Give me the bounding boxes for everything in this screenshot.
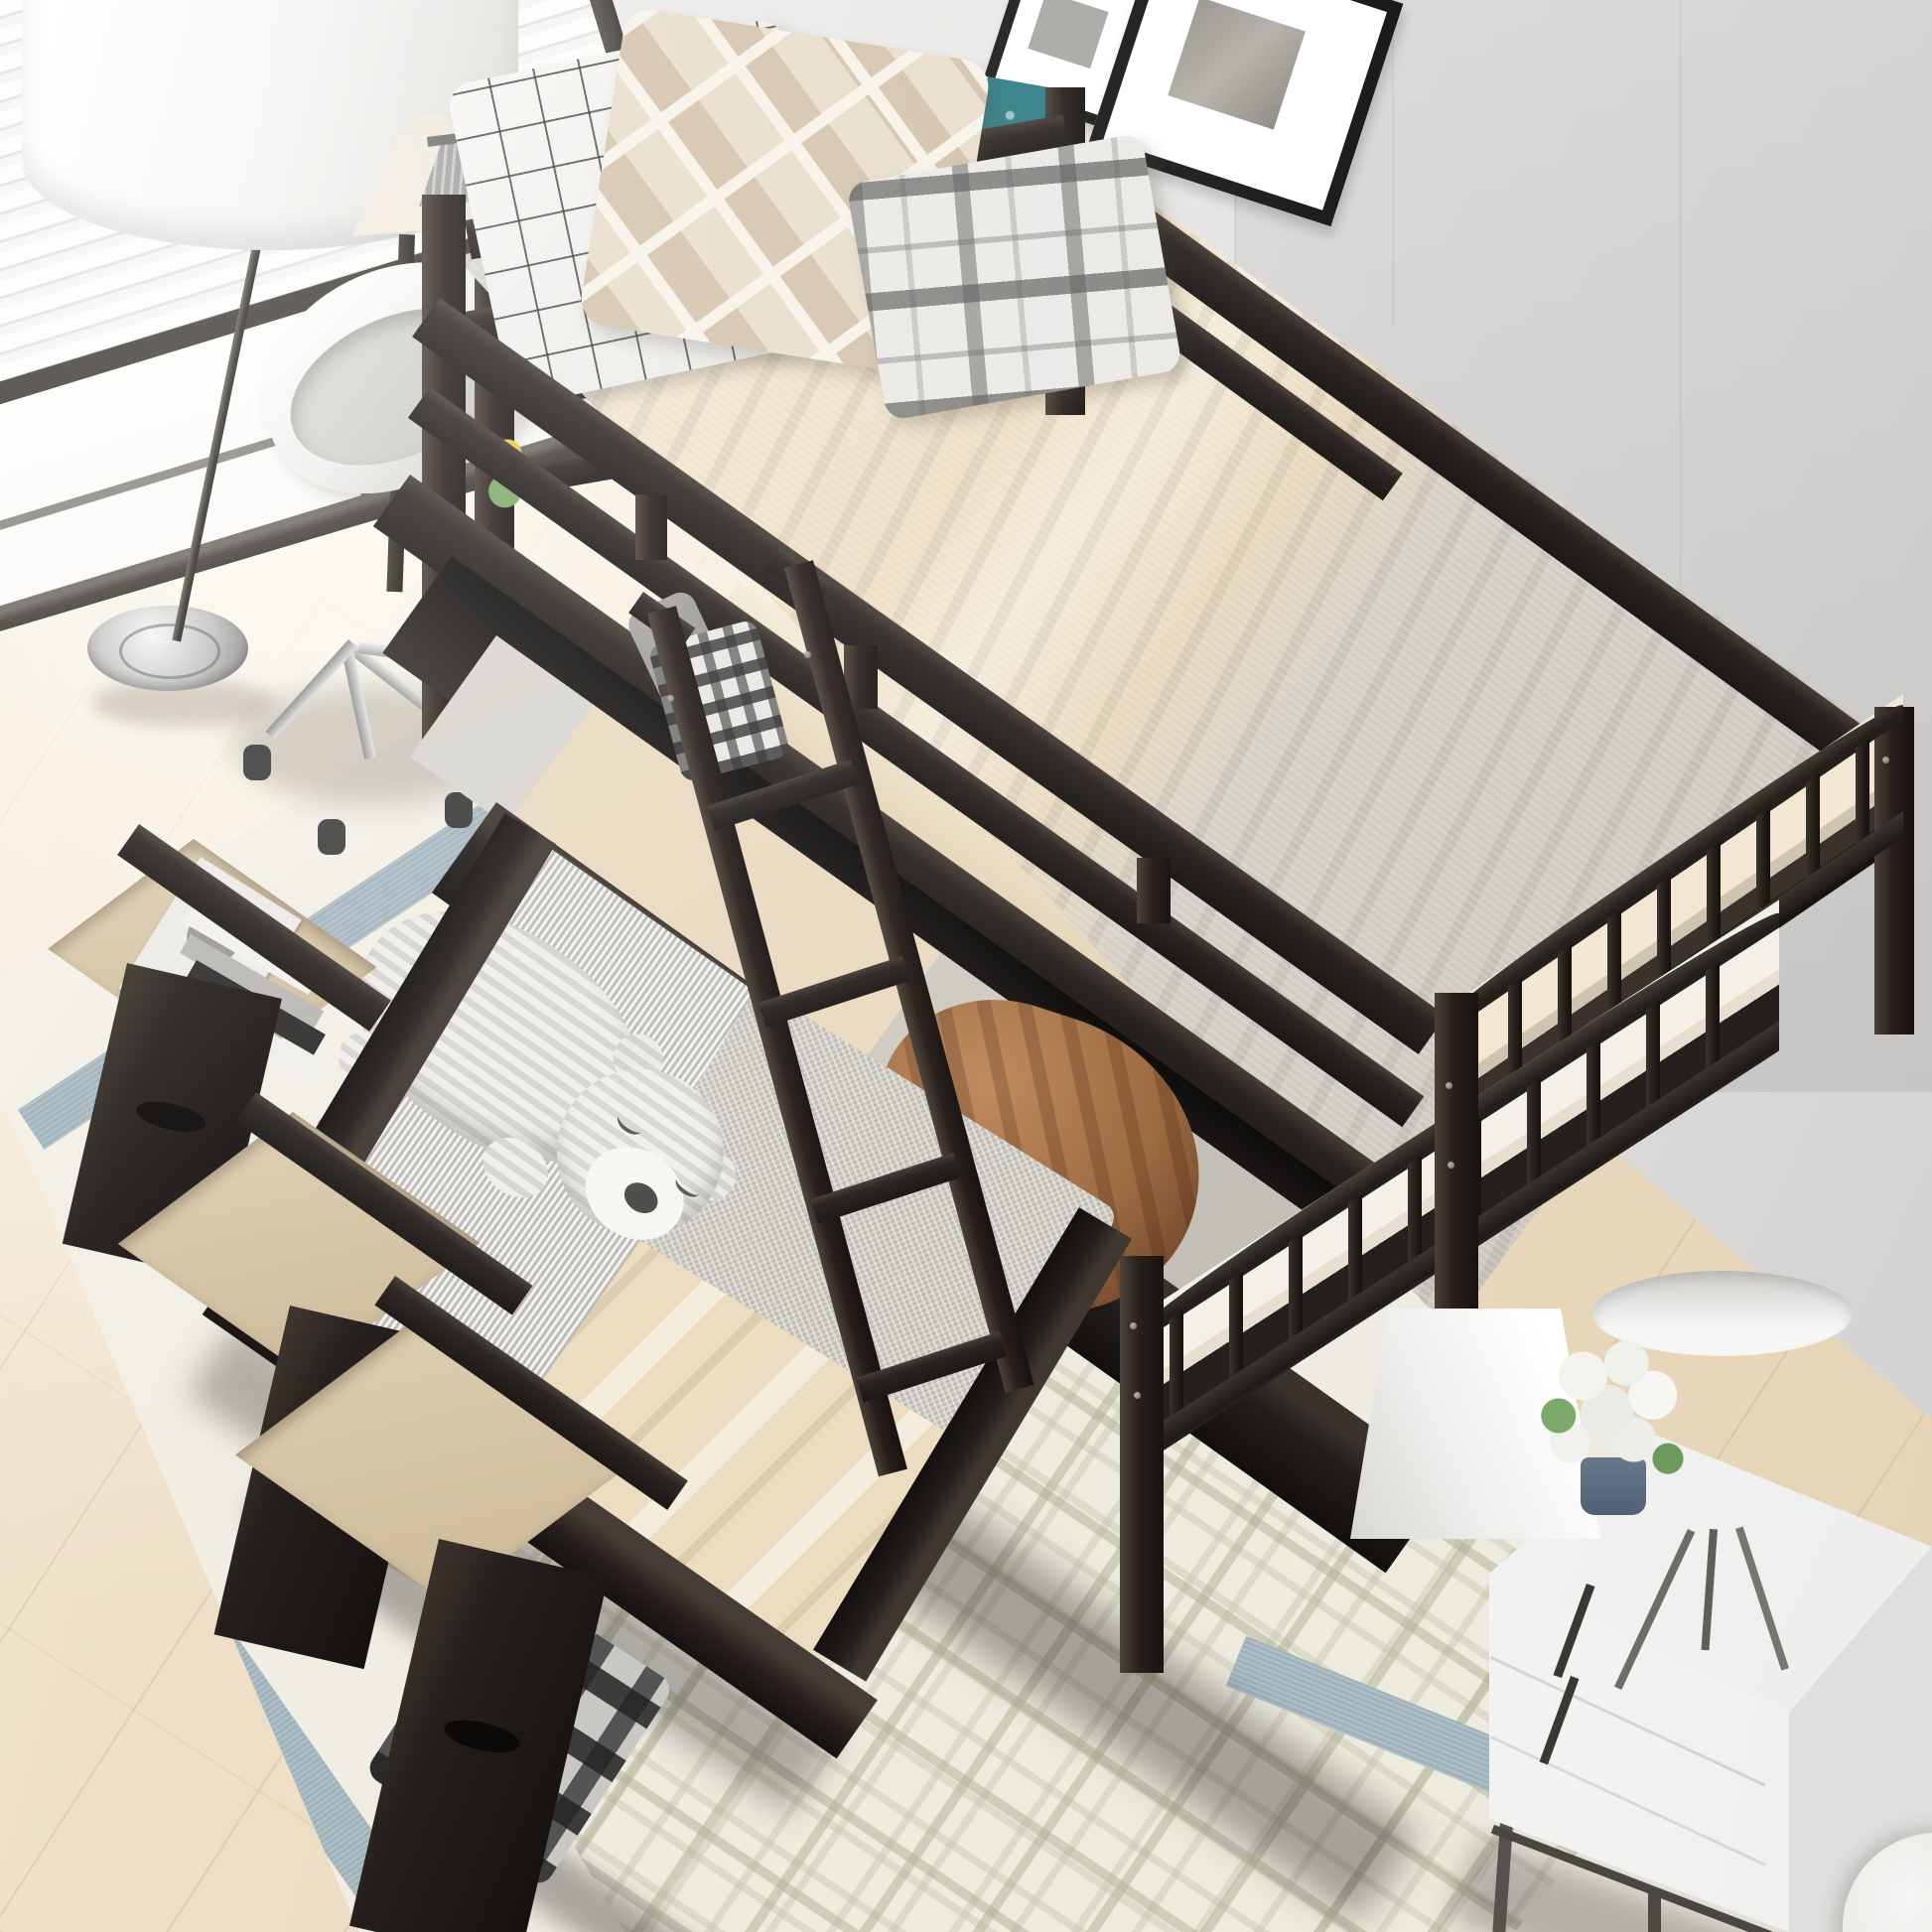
nightstand: [0, 0, 1932, 1932]
bedroom-scene: WOOL HORSE ACTING: [0, 0, 1932, 1932]
hydrangea-flowers: [1517, 1328, 1706, 1487]
